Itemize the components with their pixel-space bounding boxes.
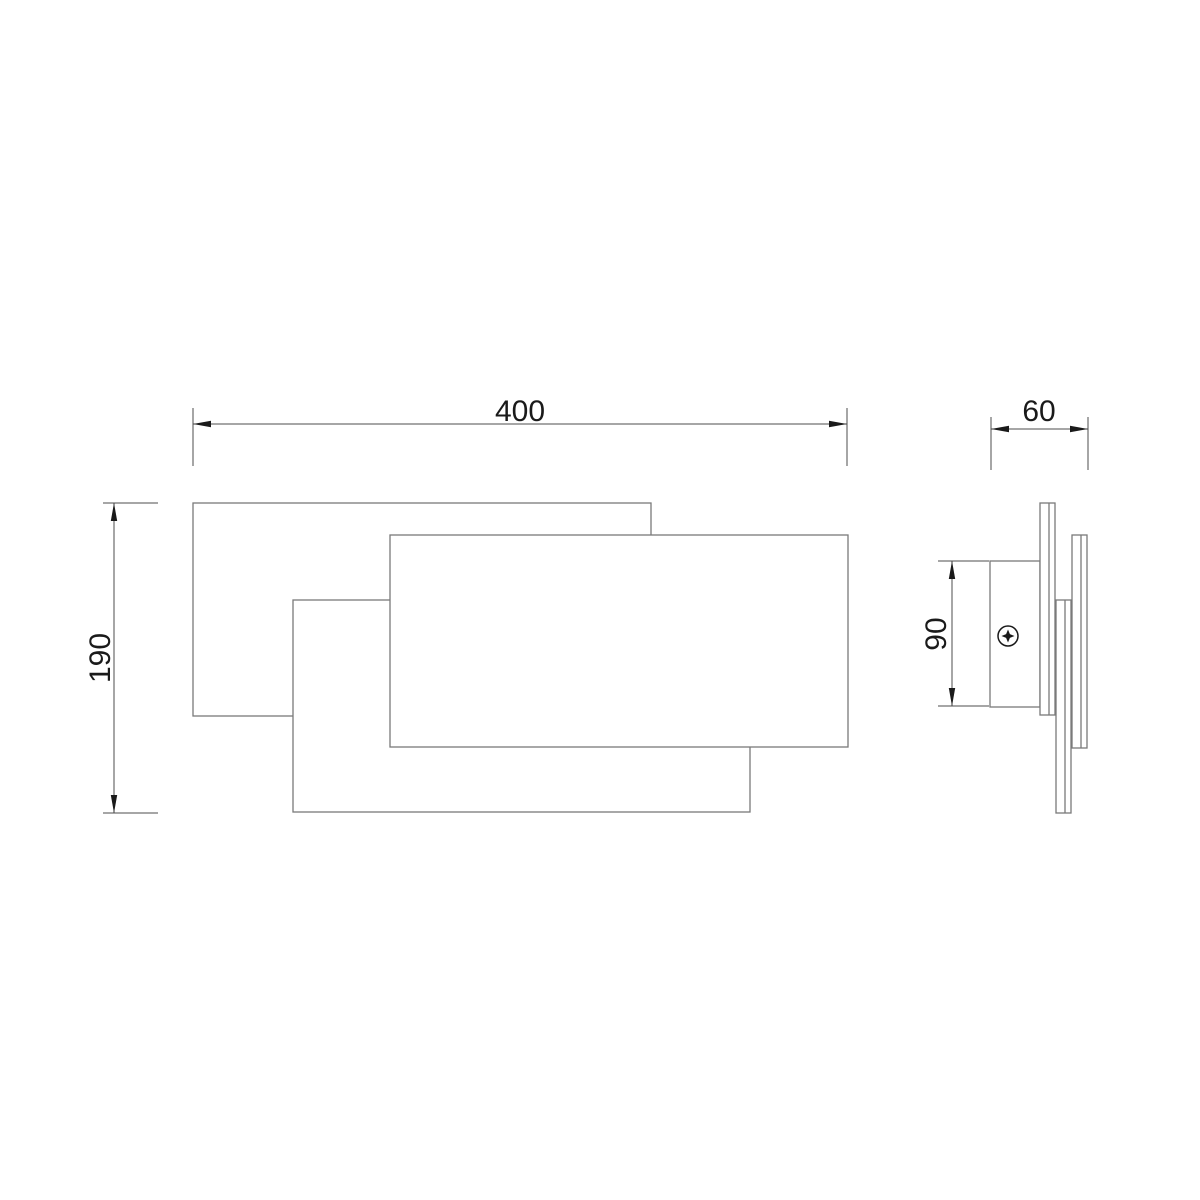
- bracket-height-dimension-value: 90: [920, 617, 953, 650]
- wall-lamp-drawing: 400 190 60: [0, 0, 1200, 1200]
- height-dimension-value: 190: [84, 633, 117, 683]
- arrow-up-icon: [949, 561, 955, 579]
- front-panel-rect: [390, 535, 848, 747]
- arrow-up-icon: [111, 503, 117, 521]
- depth-dimension: 60: [991, 395, 1088, 470]
- depth-dimension-value: 60: [1022, 395, 1055, 428]
- screw-icon: [998, 626, 1018, 646]
- front-view: [193, 503, 848, 812]
- arrow-left-icon: [991, 426, 1009, 432]
- bracket-height-dimension: 90: [920, 561, 989, 706]
- width-dimension: 400: [193, 395, 847, 466]
- arrow-down-icon: [949, 688, 955, 706]
- width-dimension-value: 400: [495, 395, 545, 428]
- technical-drawing-page: 400 190 60: [0, 0, 1200, 1200]
- height-dimension: 190: [84, 503, 158, 813]
- arrow-down-icon: [111, 795, 117, 813]
- side-view: [990, 503, 1087, 813]
- arrow-right-icon: [1070, 426, 1088, 432]
- arrow-left-icon: [193, 421, 211, 427]
- front-panel-side-rect: [1072, 535, 1087, 748]
- back-panel-side-rect: [1040, 503, 1055, 715]
- middle-panel-side-rect: [1056, 600, 1071, 813]
- arrow-right-icon: [829, 421, 847, 427]
